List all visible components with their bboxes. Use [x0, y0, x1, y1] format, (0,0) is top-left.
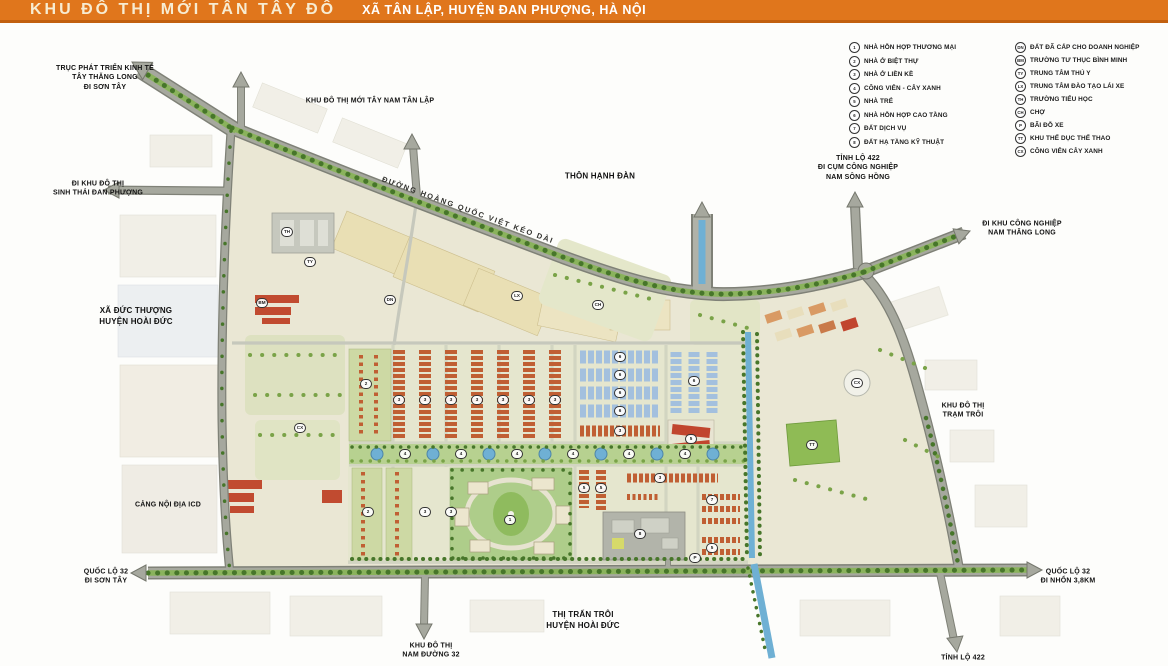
map-marker-badge: 4 — [455, 449, 467, 459]
label-sinh-thai-dan-phuong: ĐI KHU ĐÔ THỊ SINH THÁI ĐAN PHƯỢNG — [53, 180, 143, 199]
map-marker-badge: 2 — [360, 379, 372, 389]
map-marker-badge: CX — [294, 423, 306, 433]
legend-item-label: NHÀ TRẺ — [864, 98, 893, 105]
map-marker-badge: 4 — [399, 449, 411, 459]
arrow-south-icon — [416, 624, 432, 639]
map-marker-badge: 3 — [445, 507, 457, 517]
legend-item: TT KHU THỂ DỤC THỂ THAO — [1015, 133, 1168, 144]
legend-item-symbol: BM — [1015, 55, 1026, 66]
legend-item-label: NHÀ HỖN HỢP CAO TẦNG — [864, 112, 948, 119]
page-title: KHU ĐÔ THỊ MỚI TÂN TÂY ĐÔ — [30, 1, 336, 19]
legend-item: 4 CÔNG VIÊN - CÂY XANH — [849, 83, 1007, 94]
central-park — [450, 468, 572, 560]
map-marker-badge: DN — [384, 295, 396, 305]
legend-item-label: CÔNG VIÊN - CÂY XANH — [864, 85, 941, 92]
map-marker-badge: 3 — [614, 426, 626, 436]
legend-item-label: NHÀ Ở BIỆT THỰ — [864, 58, 918, 65]
map-marker-badge: 2 — [362, 507, 374, 517]
legend-item-symbol: 8 — [849, 137, 860, 148]
label-nam-duong-32: KHU ĐÔ THỊ NAM ĐƯỜNG 32 — [402, 642, 459, 661]
legend-item: TH TRƯỜNG TIỂU HỌC — [1015, 94, 1168, 105]
map-marker-badge: 5 — [706, 543, 718, 553]
legend-item-label: ĐẤT ĐÃ CẤP CHO DOANH NGHIỆP — [1030, 44, 1139, 51]
legend-item: TY TRUNG TÂM THÚ Y — [1015, 68, 1168, 79]
legend-item-label: TRƯỜNG TIỂU HỌC — [1030, 96, 1093, 103]
legend-item-label: NHÀ HỖN HỢP THƯƠNG MẠI — [864, 44, 956, 51]
legend-item-symbol: LX — [1015, 81, 1026, 92]
label-thon-hanh-dan: THÔN HẠNH ĐÀN — [565, 172, 635, 183]
map-marker-badge: 6 — [614, 406, 626, 416]
legend-item-symbol: TY — [1015, 68, 1026, 79]
map-marker-badge: 5 — [578, 483, 590, 493]
legend-item: CH CHỢ — [1015, 107, 1168, 118]
map-marker-badge: 6 — [688, 376, 700, 386]
legend-item-symbol: CH — [1015, 107, 1026, 118]
map-marker-badge: LX — [511, 291, 523, 301]
label-thi-tran-troi: THỊ TRẤN TRÔI HUYỆN HOÀI ĐỨC — [546, 610, 619, 632]
legend-item-label: ĐẤT DỊCH VỤ — [864, 125, 906, 132]
legend-item-label: CÔNG VIÊN CÂY XANH — [1030, 148, 1103, 155]
map-marker-badge: TH — [281, 227, 293, 237]
map-marker-badge: 3 — [471, 395, 483, 405]
legend-item: 3 NHÀ Ở LIỀN KỀ — [849, 69, 1007, 80]
legend-item-symbol: DN — [1015, 42, 1026, 53]
map-marker-badge: 3 — [393, 395, 405, 405]
map-marker-badge: 4 — [567, 449, 579, 459]
legend-item-label: TRUNG TÂM ĐÀO TẠO LÁI XE — [1030, 83, 1124, 90]
legend-item-symbol: 3 — [849, 69, 860, 80]
map-marker-badge: 4 — [511, 449, 523, 459]
label-ql32-east: QUỐC LỘ 32 ĐI NHỔN 3,8KM — [1041, 568, 1096, 587]
page-subtitle: XÃ TÂN LẬP, HUYỆN ĐAN PHƯỢNG, HÀ NỘI — [362, 3, 646, 17]
map-marker-badge: 6 — [614, 370, 626, 380]
map-marker-badge: 3 — [419, 507, 431, 517]
arrow-north-icon — [694, 202, 710, 217]
legend: 1 NHÀ HỖN HỢP THƯƠNG MẠI 2 NHÀ Ở BIỆT TH… — [849, 42, 1168, 159]
arrow-north-icon — [233, 72, 249, 87]
arrow-south-icon — [947, 636, 965, 653]
legend-item: BM TRƯỜNG TƯ THỤC BÌNH MINH — [1015, 55, 1168, 66]
map-marker-badge: CH — [592, 300, 604, 310]
legend-item-symbol: 4 — [849, 83, 860, 94]
map-marker-badge: BM — [256, 298, 268, 308]
label-nam-thang-long: ĐI KHU CÔNG NGHIỆP NAM THĂNG LONG — [982, 220, 1061, 239]
legend-item-symbol: 6 — [849, 110, 860, 121]
legend-item: 1 NHÀ HỖN HỢP THƯƠNG MẠI — [849, 42, 1007, 53]
map-marker-badge: 3 — [445, 395, 457, 405]
legend-item-label: BÃI ĐỖ XE — [1030, 122, 1064, 129]
label-tl422-south: TỈNH LỘ 422 — [941, 653, 985, 662]
legend-item-label: CHỢ — [1030, 109, 1045, 116]
legend-item-symbol: TH — [1015, 94, 1026, 105]
legend-item: 2 NHÀ Ở BIỆT THỰ — [849, 56, 1007, 67]
title-bar: KHU ĐÔ THỊ MỚI TÂN TÂY ĐÔ XÃ TÂN LẬP, HU… — [0, 0, 1168, 23]
legend-item: 8 ĐẤT HẠ TẦNG KỸ THUẬT — [849, 137, 1007, 148]
legend-item-symbol: P — [1015, 120, 1026, 131]
map-marker-badge: P — [689, 553, 701, 563]
map-marker-badge: TT — [806, 440, 818, 450]
map-marker-badge: 3 — [549, 395, 561, 405]
legend-item-symbol: TT — [1015, 133, 1026, 144]
legend-item: LX TRUNG TÂM ĐÀO TẠO LÁI XE — [1015, 81, 1168, 92]
map-marker-badge: 6 — [614, 388, 626, 398]
label-tay-nam-tan-lap: KHU ĐÔ THỊ MỚI TÂY NAM TÂN LẬP — [306, 96, 435, 105]
map-marker-badge: TY — [304, 257, 316, 267]
map-marker-badge: 8 — [634, 529, 646, 539]
legend-item-label: NHÀ Ở LIỀN KỀ — [864, 71, 913, 78]
legend-item-label: ĐẤT HẠ TẦNG KỸ THUẬT — [864, 139, 944, 146]
legend-lettered-column: DN ĐẤT ĐÃ CẤP CHO DOANH NGHIỆP BM TRƯỜNG… — [1015, 42, 1168, 159]
map-marker-badge: 5 — [595, 483, 607, 493]
legend-item-label: TRƯỜNG TƯ THỤC BÌNH MINH — [1030, 57, 1127, 64]
map-marker-badge: 3 — [419, 395, 431, 405]
map-marker-badge: 3 — [497, 395, 509, 405]
map-marker-badge: 3 — [523, 395, 535, 405]
label-ql32-west: QUỐC LỘ 32 ĐI SƠN TÂY — [84, 568, 128, 587]
legend-item-symbol: 1 — [849, 42, 860, 53]
label-economic-axis: TRỤC PHÁT TRIỂN KINH TẾ TÂY THĂNG LONG Đ… — [56, 64, 154, 92]
map-marker-badge: 4 — [623, 449, 635, 459]
legend-item-symbol: 2 — [849, 56, 860, 67]
legend-item: 6 NHÀ HỖN HỢP CAO TẦNG — [849, 110, 1007, 121]
legend-item-symbol: 7 — [849, 123, 860, 134]
arrow-west-icon — [131, 565, 146, 581]
map-marker-badge: CX — [851, 378, 863, 388]
legend-item: 5 NHÀ TRẺ — [849, 96, 1007, 107]
map-marker-badge: 1 — [504, 515, 516, 525]
legend-item-label: TRUNG TÂM THÚ Y — [1030, 70, 1091, 77]
legend-item: 7 ĐẤT DỊCH VỤ — [849, 123, 1007, 134]
label-tram-troi: KHU ĐÔ THỊ TRẠM TRÔI — [942, 402, 985, 421]
map-marker-badge: 3 — [654, 473, 666, 483]
map-marker-badge: 6 — [614, 352, 626, 362]
arrow-north-icon — [404, 134, 420, 149]
legend-item-label: KHU THỂ DỤC THỂ THAO — [1030, 135, 1110, 142]
legend-item: P BÃI ĐỖ XE — [1015, 120, 1168, 131]
legend-numbered-column: 1 NHÀ HỖN HỢP THƯƠNG MẠI 2 NHÀ Ở BIỆT TH… — [849, 42, 1007, 159]
legend-item-symbol: 5 — [849, 96, 860, 107]
map-marker-badge: 5 — [685, 434, 697, 444]
arrow-north-icon — [847, 192, 863, 207]
label-xa-duc-thuong: XÃ ĐỨC THƯỢNG HUYỆN HOÀI ĐỨC — [99, 306, 172, 328]
master-plan-page: 2333333366666354444442331553875THBMTYDNL… — [0, 0, 1168, 666]
map-marker-badge: 7 — [706, 495, 718, 505]
legend-item: CX CÔNG VIÊN CÂY XANH — [1015, 146, 1168, 157]
label-cang-icd: CẢNG NỘI ĐỊA ICD — [135, 500, 201, 509]
map-marker-badge: 4 — [679, 449, 691, 459]
legend-item-symbol: CX — [1015, 146, 1026, 157]
legend-item: DN ĐẤT ĐÃ CẤP CHO DOANH NGHIỆP — [1015, 42, 1168, 53]
